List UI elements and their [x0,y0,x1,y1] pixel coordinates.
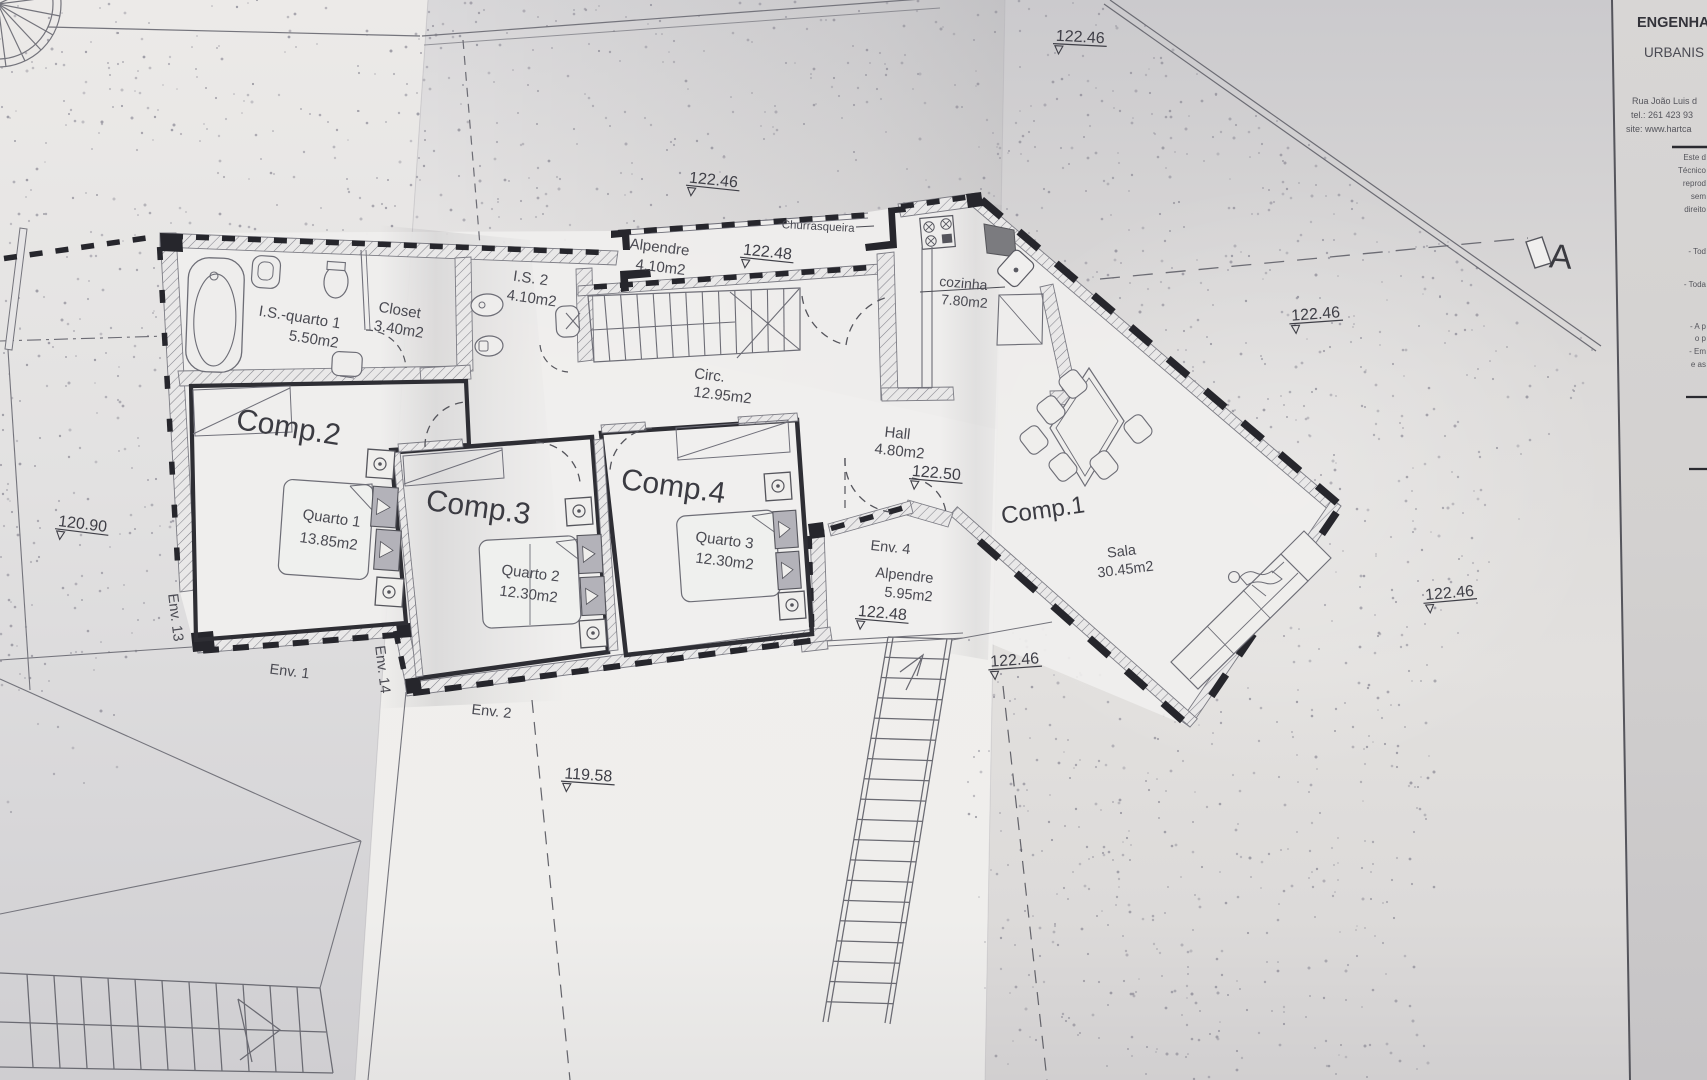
svg-text:ENGENHA: ENGENHA [1637,15,1707,31]
svg-text:- Tod: - Tod [1688,247,1706,256]
svg-text:direito: direito [1684,205,1706,214]
svg-text:A: A [1548,237,1574,277]
svg-text:o p: o p [1695,334,1707,343]
svg-text:Técnico: Técnico [1678,166,1707,175]
svg-text:e as: e as [1691,360,1706,369]
svg-text:- Em: - Em [1689,347,1706,356]
svg-text:- A p: - A p [1690,322,1707,331]
svg-text:URBANIS: URBANIS [1644,45,1704,60]
svg-text:- Toda: - Toda [1684,280,1707,289]
svg-text:sem: sem [1691,192,1706,201]
svg-text:site: www.hartca: site: www.hartca [1626,124,1692,134]
svg-text:Rua João Luis d: Rua João Luis d [1632,96,1697,106]
svg-text:tel.: 261 423 93: tel.: 261 423 93 [1631,110,1693,120]
svg-text:Este d: Este d [1683,153,1706,162]
svg-text:reprod: reprod [1683,179,1706,188]
svg-text:Hall: Hall [884,424,911,444]
